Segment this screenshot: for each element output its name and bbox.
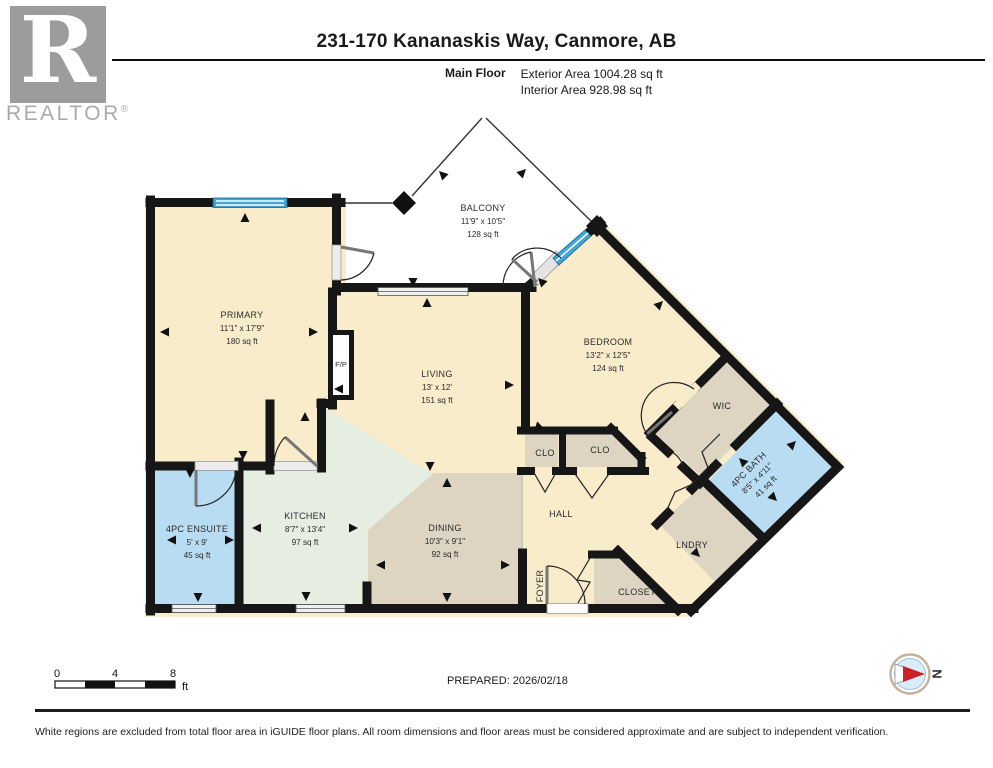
footer-divider <box>35 709 970 712</box>
scale-tick-8: 8 <box>170 668 176 680</box>
label-wic: WIC <box>713 401 732 411</box>
label-dining: DINING <box>428 523 461 533</box>
scale-tick-4: 4 <box>112 668 118 680</box>
scale-tick-0: 0 <box>54 668 60 680</box>
compass-north-label: N <box>930 669 945 678</box>
label-closet: CLOSET <box>618 587 656 597</box>
label-ensuite-dims: 5' x 9' <box>187 538 208 547</box>
label-balcony: BALCONY <box>460 203 505 213</box>
window-primary <box>213 198 287 208</box>
label-balcony-dims: 11'9" x 10'5" <box>461 217 505 226</box>
label-dining-area: 92 sq ft <box>432 550 460 559</box>
prepared-date: PREPARED: 2026/02/18 <box>447 675 568 687</box>
label-kitchen-dims: 8'7" x 13'4" <box>285 525 325 534</box>
label-bedroom-dims: 13'2" x 12'5" <box>586 351 631 360</box>
window-kitchen <box>296 605 345 613</box>
label-primary: PRIMARY <box>221 310 264 320</box>
label-kitchen: KITCHEN <box>284 511 326 521</box>
label-primary-dims: 11'1" x 17'9" <box>220 324 264 333</box>
scale-unit: ft <box>182 681 188 693</box>
label-ensuite: 4PC ENSUITE <box>166 524 228 534</box>
label-lndry: LNDRY <box>676 540 708 550</box>
label-living-dims: 13' x 12' <box>422 383 452 392</box>
label-bedroom: BEDROOM <box>584 337 633 347</box>
label-fireplace: F/P <box>335 360 347 369</box>
label-primary-area: 180 sq ft <box>226 337 258 346</box>
label-ensuite-area: 45 sq ft <box>184 551 212 560</box>
label-dining-dims: 10'3" x 9'1" <box>425 537 465 546</box>
label-living-area: 151 sq ft <box>421 396 453 405</box>
label-bedroom-area: 124 sq ft <box>592 364 624 373</box>
window-living <box>378 288 468 296</box>
scale-bar: 0 4 8 ft <box>54 668 188 693</box>
label-living: LIVING <box>421 369 452 379</box>
label-hall: HALL <box>549 509 573 519</box>
label-foyer: FOYER <box>535 570 545 603</box>
room-fills <box>145 198 844 617</box>
window-ensuite <box>172 605 216 613</box>
floor-plan-svg: PRIMARY 11'1" x 17'9" 180 sq ft BALCONY … <box>0 0 993 768</box>
label-balcony-area: 128 sq ft <box>467 230 499 239</box>
compass-icon: N <box>891 655 945 694</box>
label-clo2: CLO <box>590 445 609 455</box>
disclaimer-text: White regions are excluded from total fl… <box>35 726 965 738</box>
label-kitchen-area: 97 sq ft <box>292 538 320 547</box>
label-clo1: CLO <box>535 448 554 458</box>
